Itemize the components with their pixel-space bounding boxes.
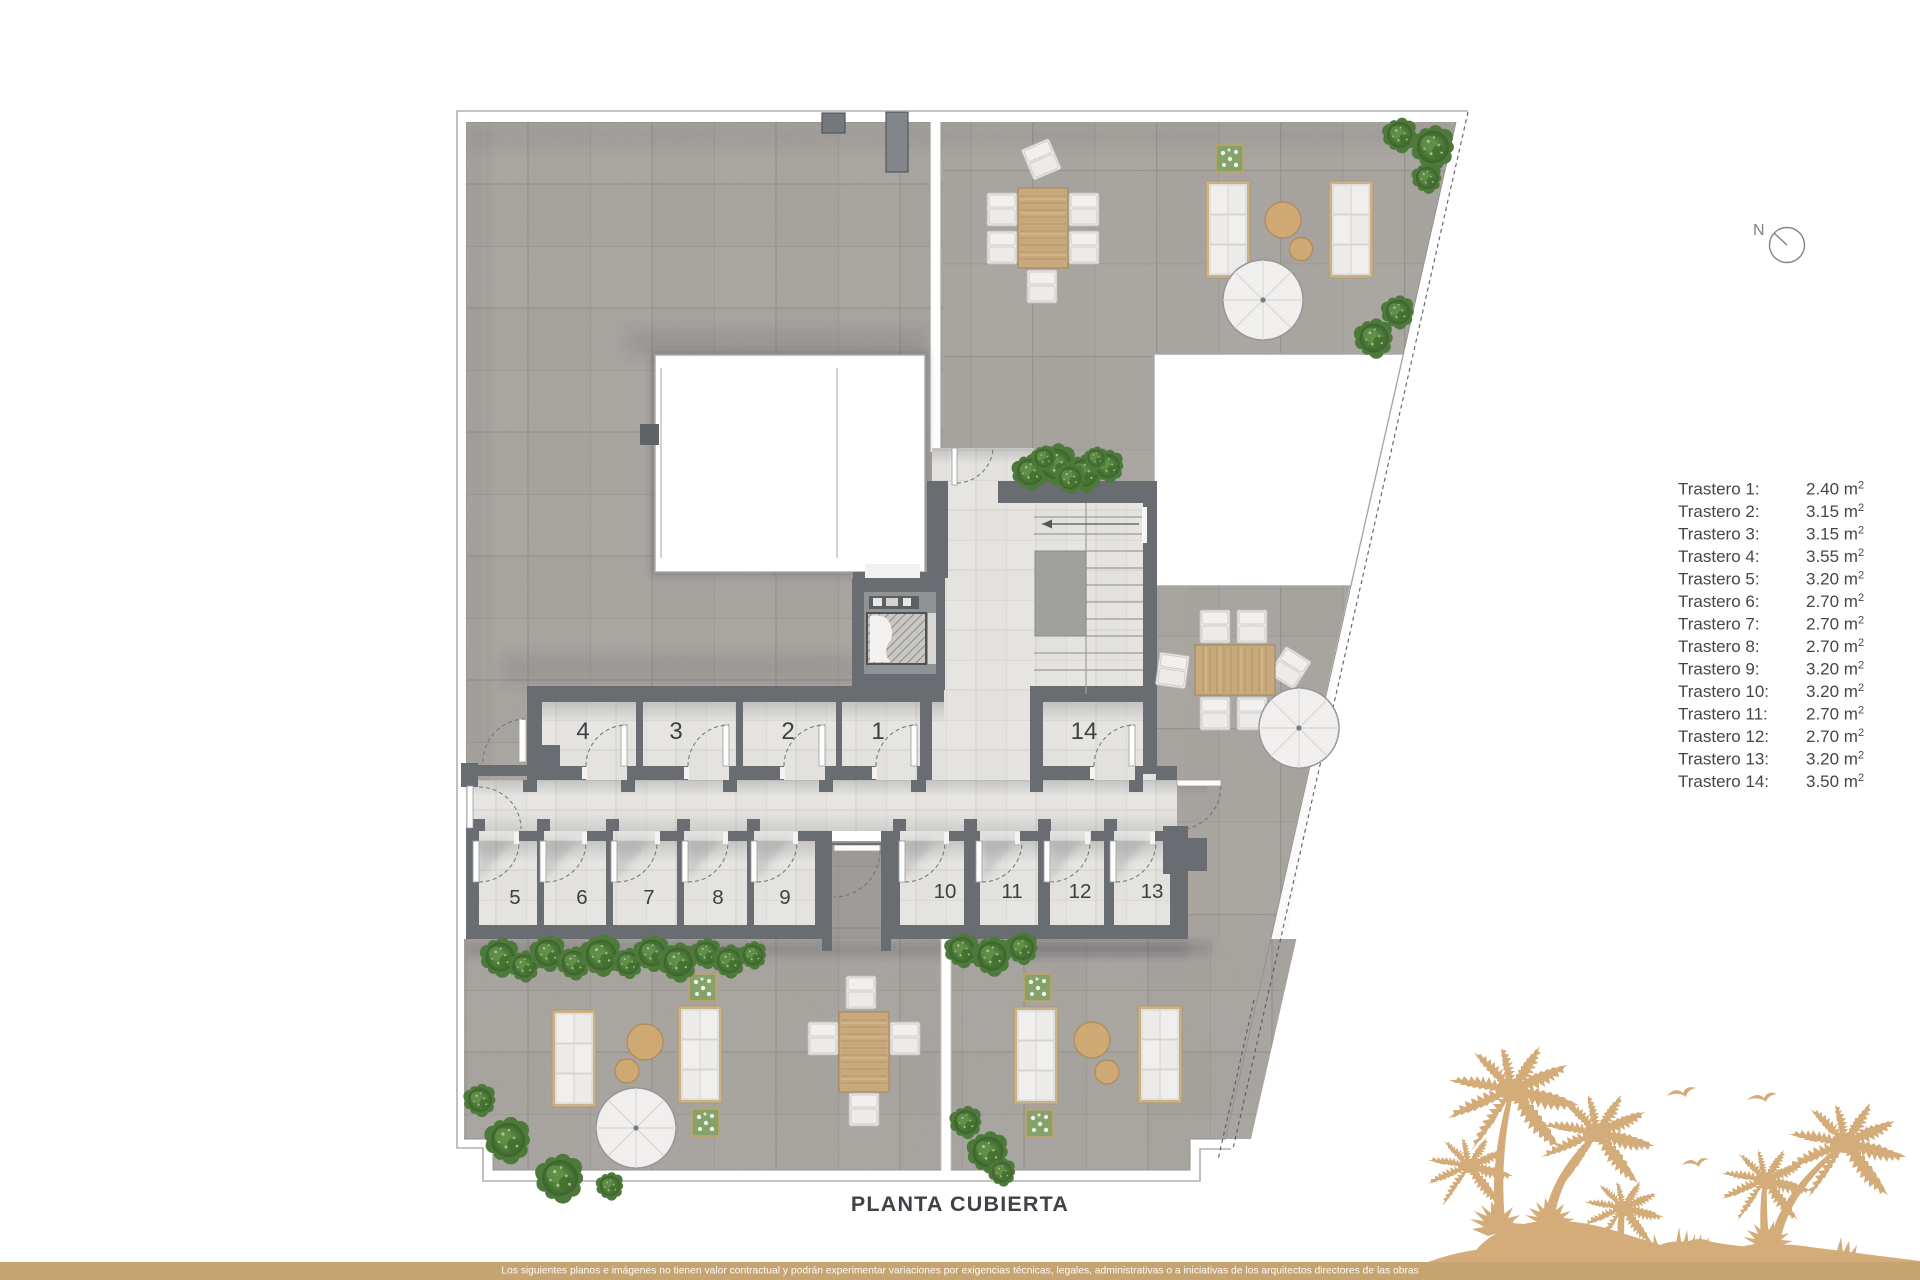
svg-text:Trastero 4:: Trastero 4: bbox=[1678, 547, 1760, 566]
svg-text:3.50 m2: 3.50 m2 bbox=[1806, 772, 1864, 791]
svg-text:4: 4 bbox=[576, 718, 589, 745]
svg-text:2.70 m2: 2.70 m2 bbox=[1806, 727, 1864, 746]
svg-text:Trastero 7:: Trastero 7: bbox=[1678, 615, 1760, 634]
svg-text:3.15 m2: 3.15 m2 bbox=[1806, 502, 1864, 521]
svg-text:2.70 m2: 2.70 m2 bbox=[1806, 592, 1864, 611]
svg-text:N: N bbox=[1753, 222, 1765, 239]
svg-text:14: 14 bbox=[1071, 718, 1098, 745]
svg-text:3.20 m2: 3.20 m2 bbox=[1806, 682, 1864, 701]
svg-text:PLANTA CUBIERTA: PLANTA CUBIERTA bbox=[851, 1192, 1069, 1216]
svg-text:Trastero 13:: Trastero 13: bbox=[1678, 750, 1769, 769]
svg-text:Trastero 10:: Trastero 10: bbox=[1678, 682, 1769, 701]
svg-text:3.15 m2: 3.15 m2 bbox=[1806, 525, 1864, 544]
svg-text:3.20 m2: 3.20 m2 bbox=[1806, 660, 1864, 679]
svg-text:Trastero 9:: Trastero 9: bbox=[1678, 660, 1760, 679]
svg-text:Trastero 14:: Trastero 14: bbox=[1678, 772, 1769, 791]
svg-text:2.70 m2: 2.70 m2 bbox=[1806, 705, 1864, 724]
svg-text:2.70 m2: 2.70 m2 bbox=[1806, 615, 1864, 634]
svg-text:2.70 m2: 2.70 m2 bbox=[1806, 637, 1864, 656]
svg-text:Trastero 1:: Trastero 1: bbox=[1678, 480, 1760, 499]
svg-text:3: 3 bbox=[669, 718, 682, 745]
svg-text:Los siguientes planos e imágen: Los siguientes planos e imágenes no tien… bbox=[501, 1266, 1419, 1277]
svg-text:7: 7 bbox=[643, 886, 654, 909]
svg-text:Trastero 2:: Trastero 2: bbox=[1678, 502, 1760, 521]
svg-text:5: 5 bbox=[509, 886, 520, 909]
svg-text:1: 1 bbox=[871, 718, 884, 745]
svg-text:12: 12 bbox=[1069, 880, 1092, 903]
svg-text:Trastero 11:: Trastero 11: bbox=[1678, 705, 1768, 724]
svg-text:3.20 m2: 3.20 m2 bbox=[1806, 570, 1864, 589]
svg-text:8: 8 bbox=[712, 886, 723, 909]
svg-text:13: 13 bbox=[1141, 880, 1164, 903]
svg-text:Trastero 8:: Trastero 8: bbox=[1678, 637, 1760, 656]
svg-text:9: 9 bbox=[779, 886, 790, 909]
svg-text:3.20 m2: 3.20 m2 bbox=[1806, 750, 1864, 769]
svg-text:2.40 m2: 2.40 m2 bbox=[1806, 480, 1864, 499]
svg-text:6: 6 bbox=[576, 886, 587, 909]
svg-text:10: 10 bbox=[934, 880, 957, 903]
svg-text:11: 11 bbox=[1001, 880, 1022, 903]
svg-text:Trastero 6:: Trastero 6: bbox=[1678, 592, 1760, 611]
svg-text:3.55 m2: 3.55 m2 bbox=[1806, 547, 1864, 566]
svg-text:Trastero 5:: Trastero 5: bbox=[1678, 570, 1760, 589]
svg-text:Trastero 12:: Trastero 12: bbox=[1678, 727, 1769, 746]
svg-text:2: 2 bbox=[781, 718, 794, 745]
svg-text:Trastero 3:: Trastero 3: bbox=[1678, 525, 1760, 544]
